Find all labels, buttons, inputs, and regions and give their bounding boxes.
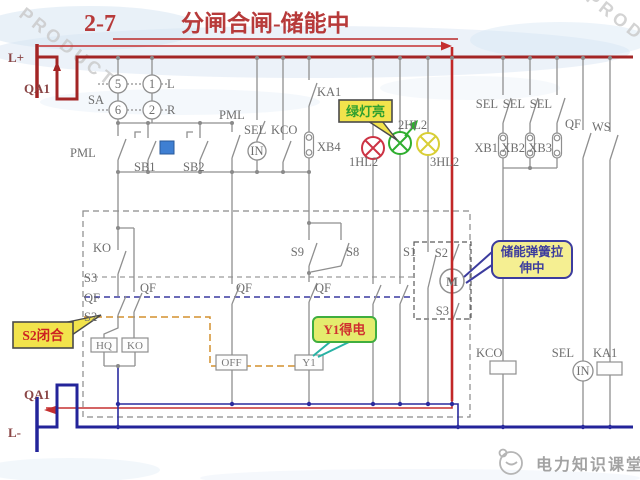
negative-bus-navy: [37, 366, 633, 452]
flow-arrow-left: [44, 406, 57, 415]
qf-off-label: QF: [236, 281, 252, 295]
circuit-diagram: PRODUCT PRODUCT 2-7 分闸合闸-储能中: [0, 0, 640, 480]
qf-right-label: QF: [565, 117, 581, 131]
schematic-slide: PRODUCT PRODUCT 2-7 分闸合闸-储能中: [0, 0, 640, 480]
kco-top-label: KCO: [271, 123, 297, 137]
xb4-fuse: [305, 132, 314, 158]
sa-terminal-1: 1: [149, 77, 155, 91]
sel3-label: SEL: [530, 97, 552, 111]
s2-left-label: S2: [84, 310, 97, 324]
l-minus-label: L-: [8, 425, 21, 440]
qf-y1-label: QF: [315, 281, 331, 295]
sb2-label: SB2: [183, 160, 205, 174]
ko-box-text: KO: [127, 340, 143, 352]
callout-spring-charging: 储能弹簧拉 伸中: [464, 241, 572, 283]
qa1-top-label: QA1: [24, 81, 50, 96]
xb3-fuse: [553, 133, 562, 158]
sa-terminal-6: 6: [115, 103, 121, 117]
sel1-label: SEL: [476, 97, 498, 111]
callout-y1-energized: Y1得电: [313, 317, 376, 357]
sa-terminal-2: 2: [149, 103, 155, 117]
ka1-contact-label: KA1: [317, 85, 341, 99]
xb3-label: XB3: [528, 141, 552, 155]
sel-top-label: SEL: [244, 123, 266, 137]
ws-label: WS: [592, 120, 611, 134]
off-box-text: OFF: [221, 357, 241, 369]
ka1-coil-box: [597, 362, 622, 375]
sa-terminal-r: R: [167, 103, 176, 117]
kco-coil-box: [490, 361, 516, 374]
ka1-bottom-label: KA1: [593, 346, 617, 360]
sel2-label: SEL: [503, 97, 525, 111]
bus-junction-dots: [116, 402, 612, 429]
blue-square-indicator: [160, 141, 174, 154]
negative-bus-line: [37, 385, 633, 427]
ko-contact-label: KO: [93, 241, 111, 255]
lamp-3hl2: [417, 133, 439, 155]
callout-y1-energized-text: Y1得电: [324, 322, 366, 337]
hq-box-text: HQ: [96, 340, 112, 352]
qf-left-label: QF: [84, 291, 100, 305]
callout-spring-text-1: 储能弹簧拉: [500, 244, 564, 259]
in-bottom-text: IN: [576, 364, 589, 378]
s8-label: S8: [346, 245, 359, 259]
title-text: 分闸合闸-储能中: [181, 10, 350, 36]
sb1-label: SB1: [134, 160, 156, 174]
qf-mid-label: QF: [140, 281, 156, 295]
lamp-1hl2-label: 1HL2: [349, 155, 378, 169]
lamp-2hl2-label: 2HL2: [398, 118, 427, 132]
s2-motor-label: S2: [435, 246, 448, 260]
xb2-label: XB2: [501, 141, 525, 155]
xb4-label: XB4: [317, 140, 341, 154]
xb1-label: XB1: [474, 141, 498, 155]
pml-contact-label: PML: [70, 146, 96, 160]
sel-bottom-label: SEL: [552, 346, 574, 360]
callout-s2-closed-text: S2闭合: [22, 327, 64, 343]
s1-label: S1: [403, 245, 416, 259]
sa-label: SA: [88, 93, 104, 107]
l-plus-label: L+: [8, 50, 24, 65]
callout-spring-text-2: 伸中: [518, 260, 544, 275]
s9-label: S9: [291, 245, 304, 259]
lamp-3hl2-label: 3HL2: [430, 155, 459, 169]
callout-green-lamp-text: 绿灯亮: [346, 104, 385, 119]
motor-m-text: M: [446, 275, 458, 289]
sa-terminal-l: L: [167, 77, 175, 91]
qa1-bottom-label: QA1: [24, 387, 50, 402]
in-top-text: IN: [250, 144, 263, 158]
kco-bottom-label: KCO: [476, 346, 502, 360]
s3-left-label: S3: [84, 271, 97, 285]
title-number: 2-7: [84, 11, 116, 37]
sa-terminal-5: 5: [115, 77, 121, 91]
interlock-dashed-box: [83, 211, 471, 417]
callout-green-lamp: 绿灯亮: [339, 100, 397, 140]
s3-motor-label: S3: [436, 304, 449, 318]
brand-text: 电力知识课堂: [536, 455, 640, 474]
pml2-contact-label: PML: [219, 108, 245, 122]
y1-box-text: Y1: [302, 357, 315, 369]
